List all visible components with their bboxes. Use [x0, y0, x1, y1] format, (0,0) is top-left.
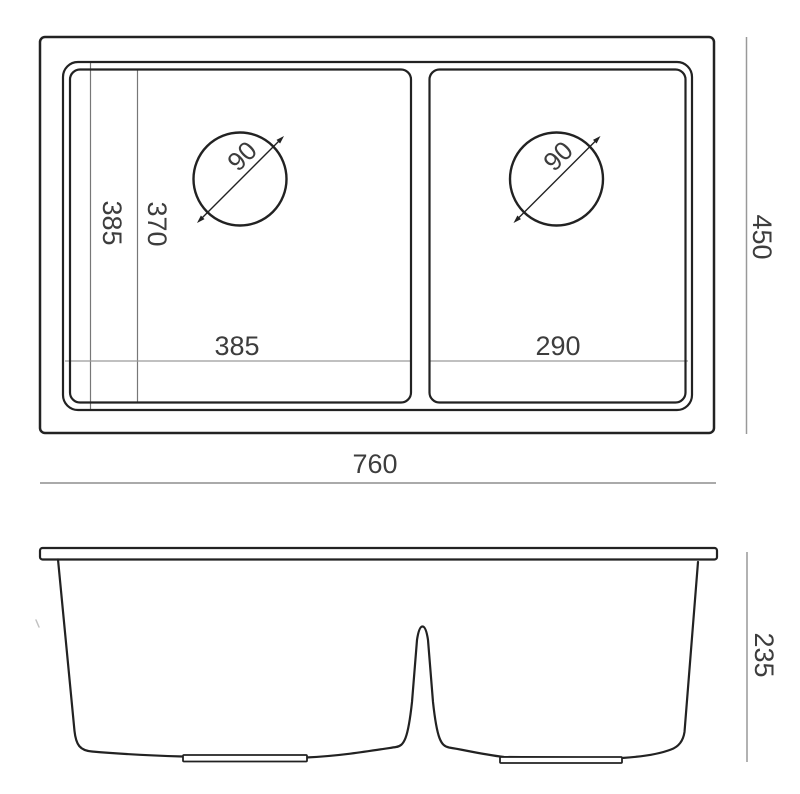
top-view	[40, 37, 714, 433]
dim-right-bowl-width: 290	[518, 332, 598, 360]
dim-bowl-length-outer: 385	[98, 183, 126, 263]
side-view	[36, 548, 717, 763]
dim-left-bowl-width: 385	[197, 332, 277, 360]
side-view-body-profile	[58, 560, 698, 759]
top-view-outer-edge	[40, 37, 714, 433]
dimension-lines	[40, 37, 747, 762]
dim-overall-depth: 450	[748, 197, 776, 277]
sink-technical-drawing: 385 370 90 90 385 290 760 450 235	[0, 0, 800, 794]
dim-side-height: 235	[750, 615, 778, 695]
dim-bowl-length-inner: 370	[143, 184, 171, 264]
left-foot-pad	[183, 755, 307, 762]
drawing-linework	[0, 0, 800, 794]
side-view-rim	[40, 548, 717, 560]
dim-overall-width: 760	[335, 450, 415, 478]
right-foot-pad	[500, 757, 622, 763]
stray-mark	[36, 620, 39, 627]
